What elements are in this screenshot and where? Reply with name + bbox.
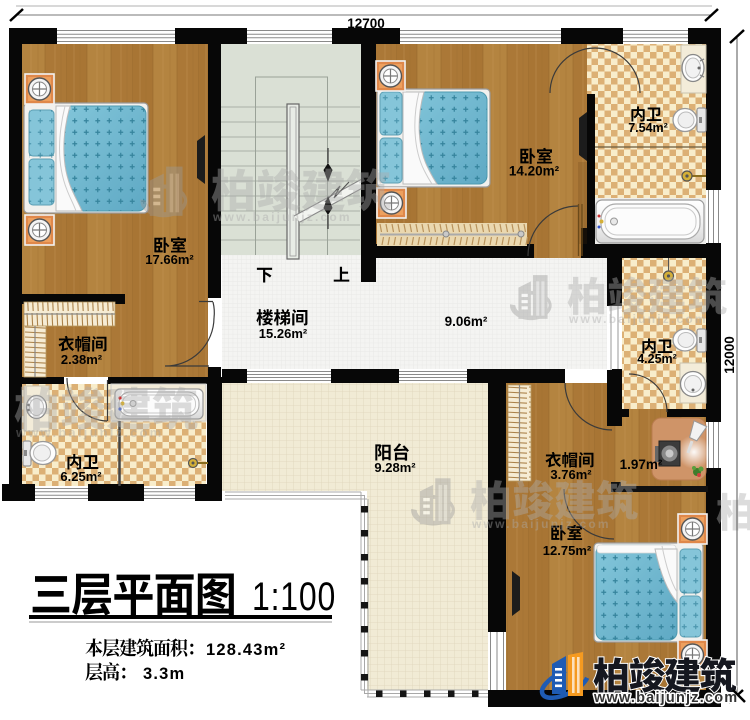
svg-text:3.3m: 3.3m xyxy=(143,665,185,683)
svg-text:12700: 12700 xyxy=(347,16,385,31)
svg-text:www.baijunjz.com: www.baijunjz.com xyxy=(568,312,708,326)
svg-text:www.baijunjz.com: www.baijunjz.com xyxy=(593,690,738,706)
svg-text:17.66m²: 17.66m² xyxy=(145,252,194,267)
svg-text:15.26m²: 15.26m² xyxy=(259,326,308,341)
svg-text:12.75m²: 12.75m² xyxy=(543,543,592,558)
svg-text:2.38m²: 2.38m² xyxy=(61,352,103,367)
svg-text:128.43m²: 128.43m² xyxy=(206,641,286,659)
svg-text:www.baijunjz.com: www.baijunjz.com xyxy=(15,425,163,440)
svg-text:1:100: 1:100 xyxy=(252,574,336,619)
svg-text:www.baijunjz.com: www.baijunjz.com xyxy=(212,210,352,224)
svg-text:9.06m²: 9.06m² xyxy=(445,314,488,329)
svg-text:9.28m²: 9.28m² xyxy=(374,460,416,475)
svg-text:14.20m²: 14.20m² xyxy=(509,164,560,179)
svg-text:3.76m²: 3.76m² xyxy=(550,467,592,482)
svg-text:12000: 12000 xyxy=(722,336,737,374)
svg-text:www.baijunjz.com: www.baijunjz.com xyxy=(471,517,611,531)
svg-text:6.25m²: 6.25m² xyxy=(60,469,102,484)
svg-text:7.54m²: 7.54m² xyxy=(628,121,668,135)
svg-text:1.97m²: 1.97m² xyxy=(620,457,663,472)
svg-text:4.25m²: 4.25m² xyxy=(637,352,677,366)
